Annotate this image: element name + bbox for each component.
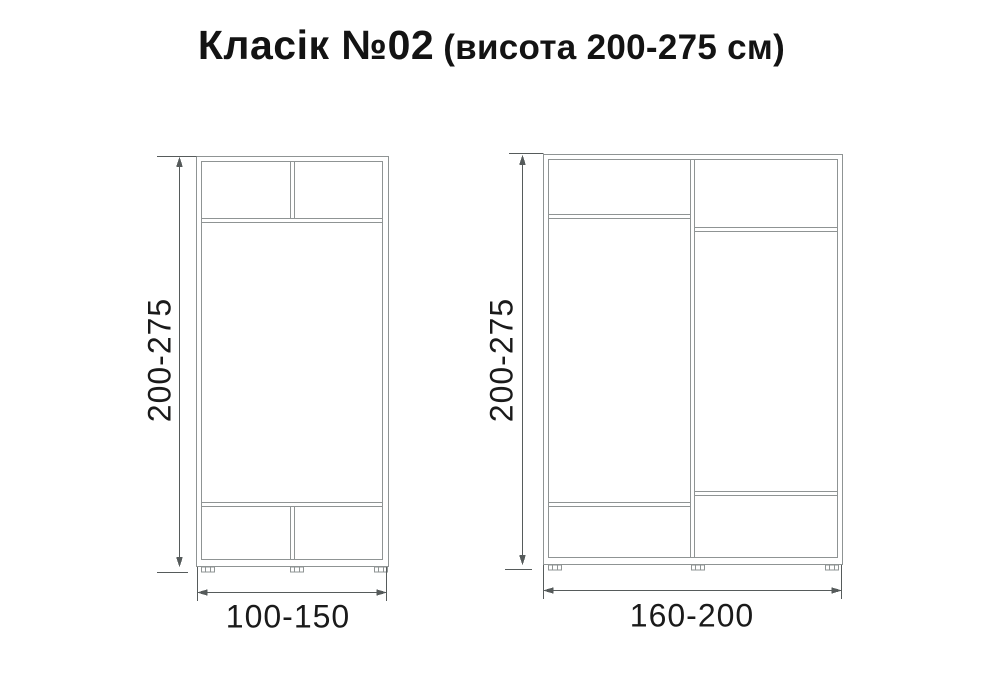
wardrobe-large-drawing [544,155,843,571]
wardrobe-small-inner-panel [202,162,383,560]
foot-icon [692,565,705,570]
height-label-large: 200-275 [484,298,521,422]
foot-icon [549,565,562,570]
arrow-left-icon [197,589,208,595]
foot-icon [375,567,388,572]
arrow-up-icon [176,157,183,168]
width-label-large: 160-200 [630,598,754,635]
arrow-right-icon [832,587,843,593]
arrow-right-icon [377,589,388,595]
foot-icon [291,567,304,572]
wardrobe-small-drawing [197,157,389,573]
foot-icon [826,565,839,570]
arrow-left-icon [543,587,554,593]
arrow-down-icon [176,557,183,568]
diagram-page: Класік №02(висота 200-275 см) [0,0,983,700]
arrow-down-icon [519,555,526,566]
wardrobe-large-inner-panel [549,160,838,558]
arrow-up-icon [519,155,526,166]
width-label-small: 100-150 [226,599,350,636]
foot-icon [202,567,215,572]
height-label-small: 200-275 [142,298,179,422]
